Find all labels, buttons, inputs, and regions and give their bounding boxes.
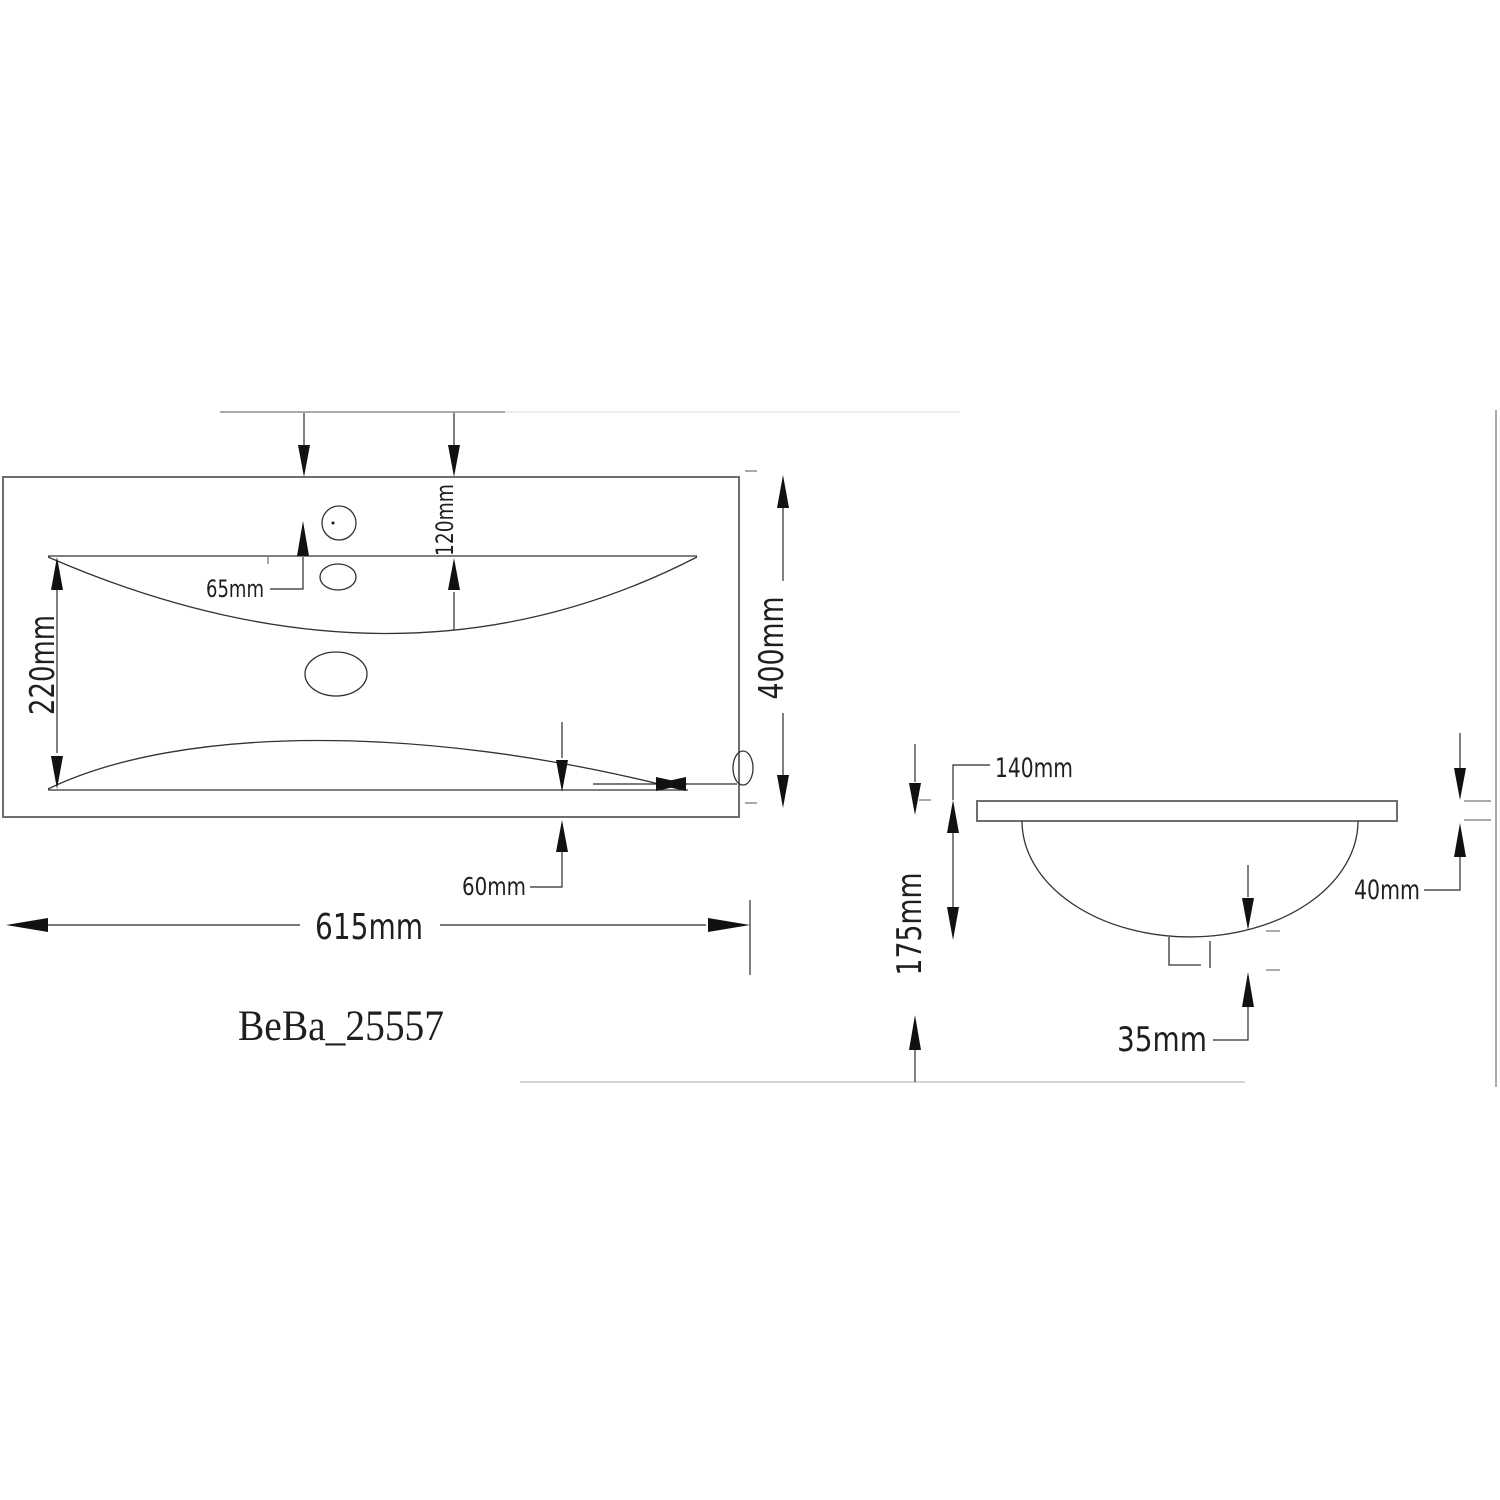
dim-rim-thickness: 40mm (1354, 733, 1491, 906)
total-depth-label: 175mm (890, 873, 930, 976)
rim-thickness-label: 40mm (1354, 875, 1420, 906)
basin-rim-upper-curve (48, 557, 697, 634)
secondary-hole (320, 564, 356, 590)
dim-basin-height: 220mm (23, 557, 63, 789)
side-top-reference-arrow (909, 744, 931, 815)
dim-hole-spacing: 65mm (206, 521, 309, 603)
technical-drawing: 120mm 65mm 220mm 400mm (0, 0, 1500, 1500)
dim-edge-offset: 60mm (462, 820, 568, 901)
dim-tap-offset: 120mm (431, 484, 460, 630)
drawing-sheet: 120mm 65mm 220mm 400mm (0, 0, 1500, 1500)
basin-height-label: 220mm (23, 615, 63, 715)
side-view: 140mm 175mm 35mm (890, 733, 1491, 1082)
countertop-bar (977, 801, 1397, 821)
height-label: 400mm (752, 597, 792, 700)
overflow-hole (733, 751, 753, 785)
edge-offset-label: 60mm (462, 872, 526, 901)
top-reference-arrow-right (448, 413, 460, 477)
rim-offset-label: 140mm (995, 753, 1073, 784)
dim-rim-offset: 140mm (953, 753, 1073, 800)
drain-hole (305, 652, 367, 696)
dim-total-depth: 175mm (890, 800, 959, 976)
side-bottom-reference-arrow (909, 1015, 921, 1082)
tap-hole-center-dot (332, 522, 335, 525)
construction-lines (220, 410, 1496, 1087)
width-label: 615mm (315, 907, 423, 948)
tap-hole (322, 506, 356, 540)
bowl-profile (1022, 821, 1358, 937)
dim-height: 400mm (752, 475, 792, 808)
top-reference-arrow-left (298, 413, 310, 477)
dim-drain-height: 35mm (1117, 865, 1280, 1060)
product-code: BeBa_25557 (238, 1003, 444, 1050)
basin-rim-lower-curve (48, 740, 663, 789)
dim-width: 615mm (6, 900, 750, 975)
basin-outline-front (3, 477, 739, 817)
hole-spacing-label: 65mm (206, 575, 264, 603)
tap-offset-label: 120mm (431, 484, 459, 556)
front-view: 120mm 65mm 220mm 400mm (3, 413, 792, 1050)
drain-outlet (1169, 937, 1210, 968)
drain-height-label: 35mm (1117, 1020, 1207, 1060)
